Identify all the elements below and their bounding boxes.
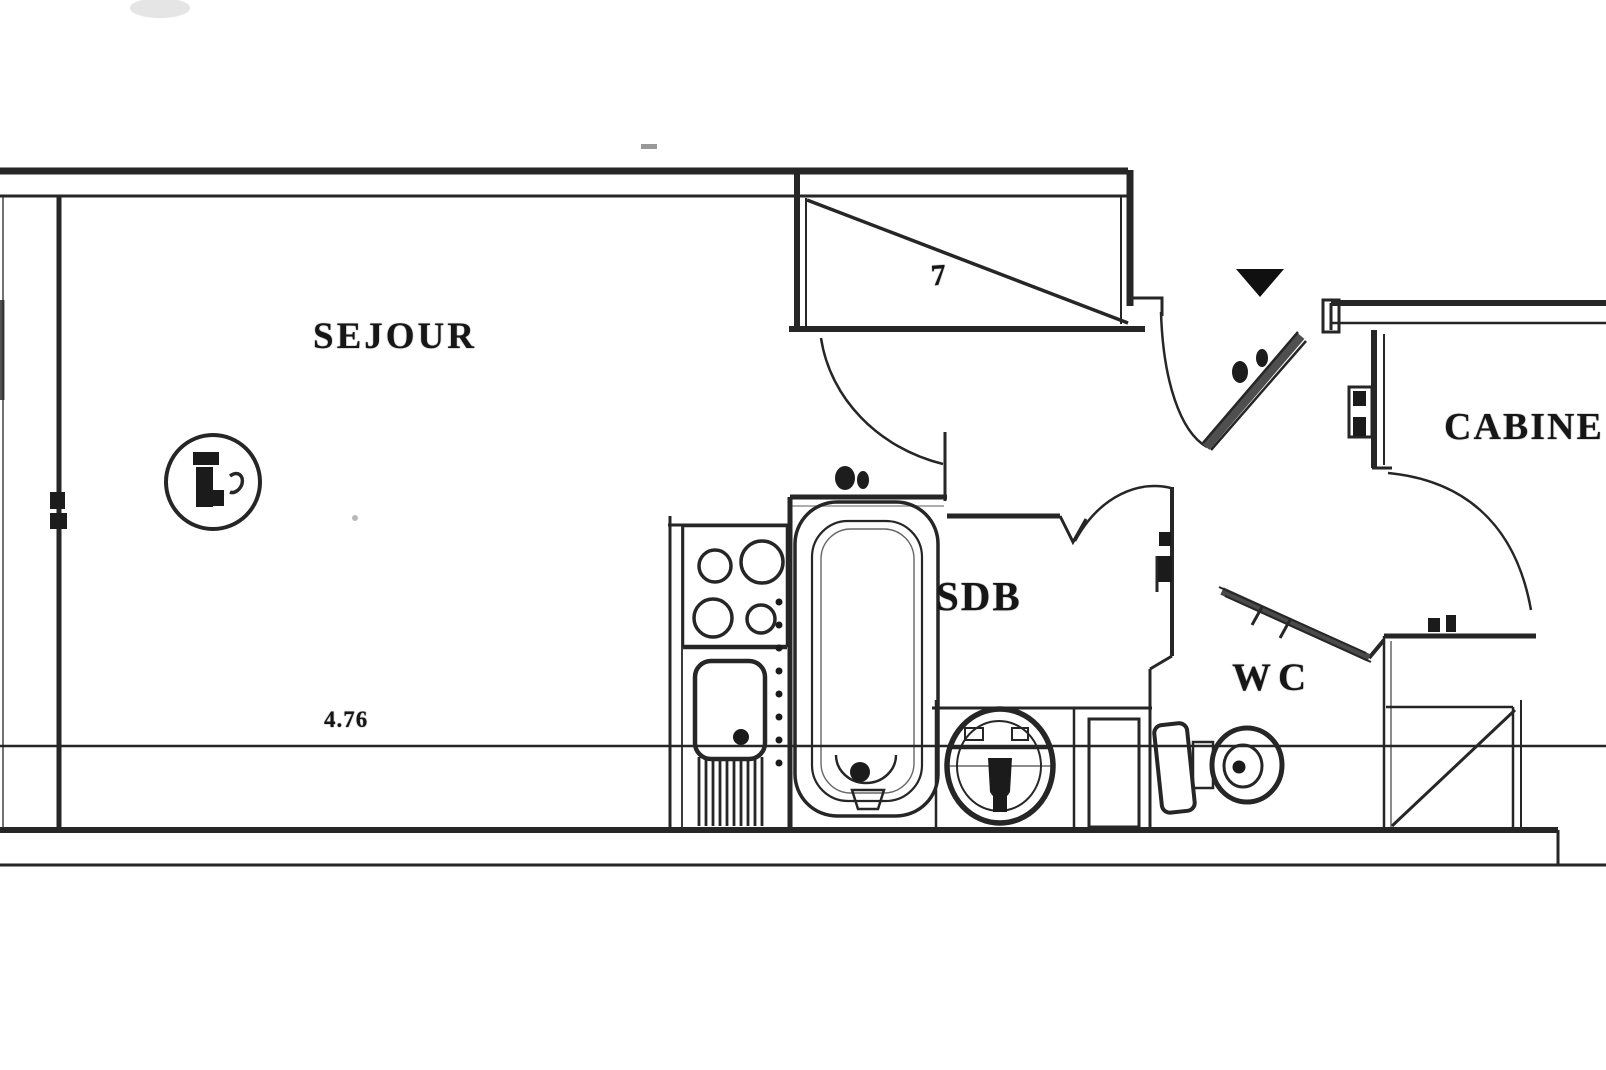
cabine-door-arc xyxy=(1388,473,1531,610)
drainer-hatch xyxy=(699,757,762,826)
dimension-smudge xyxy=(835,466,855,490)
scan-artifact xyxy=(130,0,657,521)
closet-mark-label: 7 xyxy=(930,261,947,292)
entry-door-leaf xyxy=(1206,336,1301,447)
bathtub-icon xyxy=(795,502,938,816)
closet-diagonal-icon xyxy=(807,200,1128,323)
room-label-sdb: SDB xyxy=(936,576,1022,617)
dimension-smudge xyxy=(1256,349,1268,367)
dimension-label: 4.76 xyxy=(324,708,368,731)
round-table-icon xyxy=(166,435,260,529)
entrance-triangle-icon xyxy=(1236,269,1284,297)
kitchen-sink-icon xyxy=(695,661,765,759)
kitchen xyxy=(668,497,790,829)
floor-plan: SEJOUR SDB WC CABINE 4.76 7 xyxy=(0,0,1606,1070)
washbasin-icon xyxy=(947,709,1053,823)
dimension-smudge xyxy=(857,471,869,489)
room-label-cabine: CABINE xyxy=(1444,408,1604,446)
room-label-wc: WC xyxy=(1232,658,1313,697)
toilet-icon xyxy=(1153,722,1282,813)
closet-diagonal-icon xyxy=(1392,710,1515,826)
entry-door-arc xyxy=(1161,312,1207,447)
dimension-smudge xyxy=(1232,361,1248,383)
dotted-partition xyxy=(776,599,783,767)
duct-box xyxy=(1089,719,1139,827)
cabine-area xyxy=(1331,303,1606,610)
sdb-door-arc xyxy=(1075,486,1171,541)
hall-door-arc xyxy=(821,338,943,464)
room-label-sejour: SEJOUR xyxy=(313,318,477,355)
hob-4-burners-icon xyxy=(683,526,787,646)
cabine-closet xyxy=(1369,615,1536,829)
entry-area xyxy=(1161,269,1339,450)
plan-drawing xyxy=(0,0,1606,1070)
wc-door-leaf xyxy=(1222,591,1369,658)
